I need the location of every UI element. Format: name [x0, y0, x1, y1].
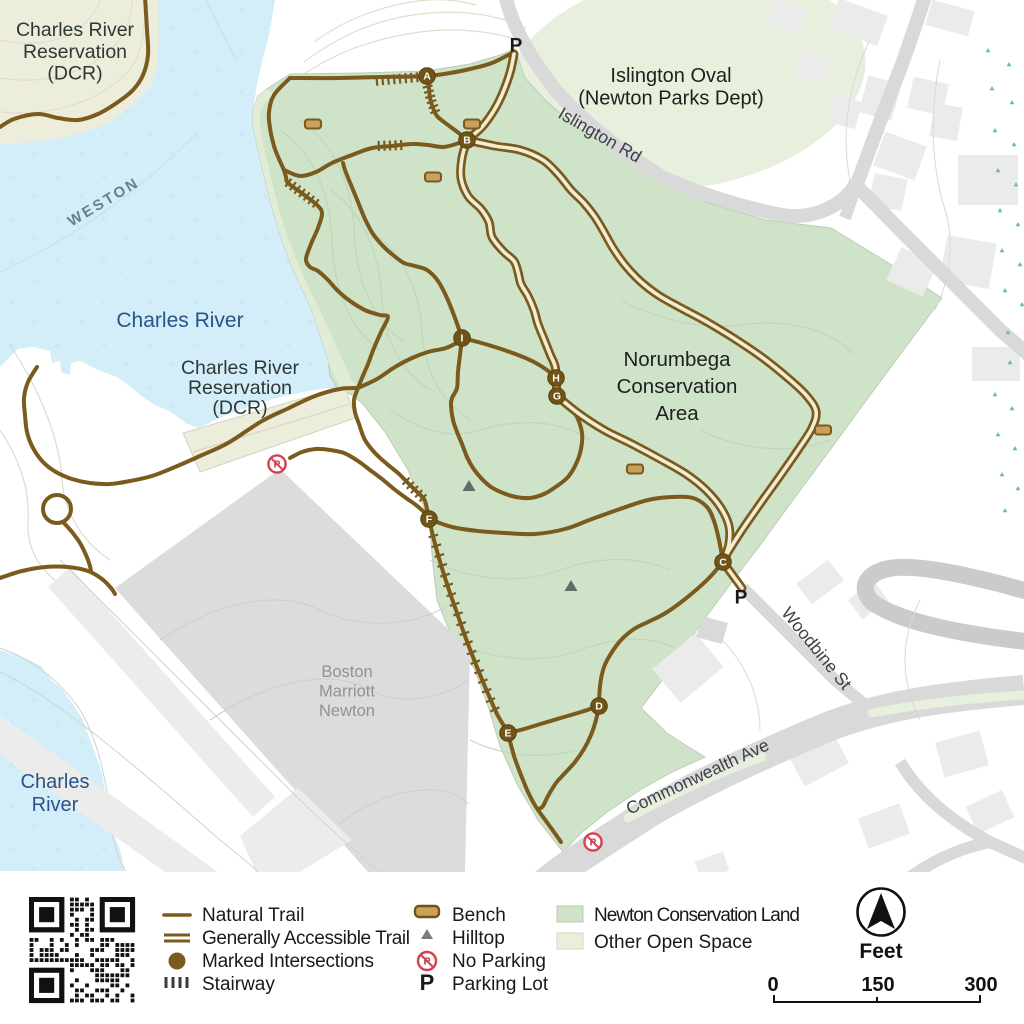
svg-text:Hilltop: Hilltop [452, 928, 505, 949]
svg-text:A: A [423, 71, 431, 83]
svg-text:Bench: Bench [452, 905, 506, 926]
svg-text:Feet: Feet [859, 940, 902, 963]
svg-text:F: F [426, 514, 433, 526]
svg-text:P: P [420, 970, 435, 995]
svg-text:Natural Trail: Natural Trail [202, 905, 304, 926]
svg-text:G: G [553, 391, 561, 403]
svg-text:Newton Conservation Land: Newton Conservation Land [594, 905, 800, 926]
svg-text:No Parking: No Parking [452, 951, 546, 972]
svg-text:150: 150 [861, 974, 894, 996]
svg-text:P: P [510, 36, 523, 57]
svg-text:Other Open Space: Other Open Space [594, 932, 752, 953]
svg-text:I: I [461, 333, 464, 345]
svg-text:Marked Intersections: Marked Intersections [202, 951, 374, 972]
svg-text:D: D [595, 701, 603, 713]
svg-text:0: 0 [767, 974, 778, 996]
svg-text:Charles River: Charles River [116, 309, 243, 332]
svg-text:Stairway: Stairway [202, 974, 275, 995]
svg-text:300: 300 [964, 974, 997, 996]
svg-text:BostonMarriottNewton: BostonMarriottNewton [319, 663, 375, 720]
svg-text:Generally Accessible Trail: Generally Accessible Trail [202, 928, 410, 949]
svg-text:C: C [719, 557, 727, 569]
svg-text:Parking Lot: Parking Lot [452, 974, 549, 995]
svg-text:H: H [552, 373, 560, 385]
svg-text:B: B [463, 135, 471, 147]
svg-text:E: E [504, 728, 511, 740]
svg-text:P: P [735, 588, 748, 609]
